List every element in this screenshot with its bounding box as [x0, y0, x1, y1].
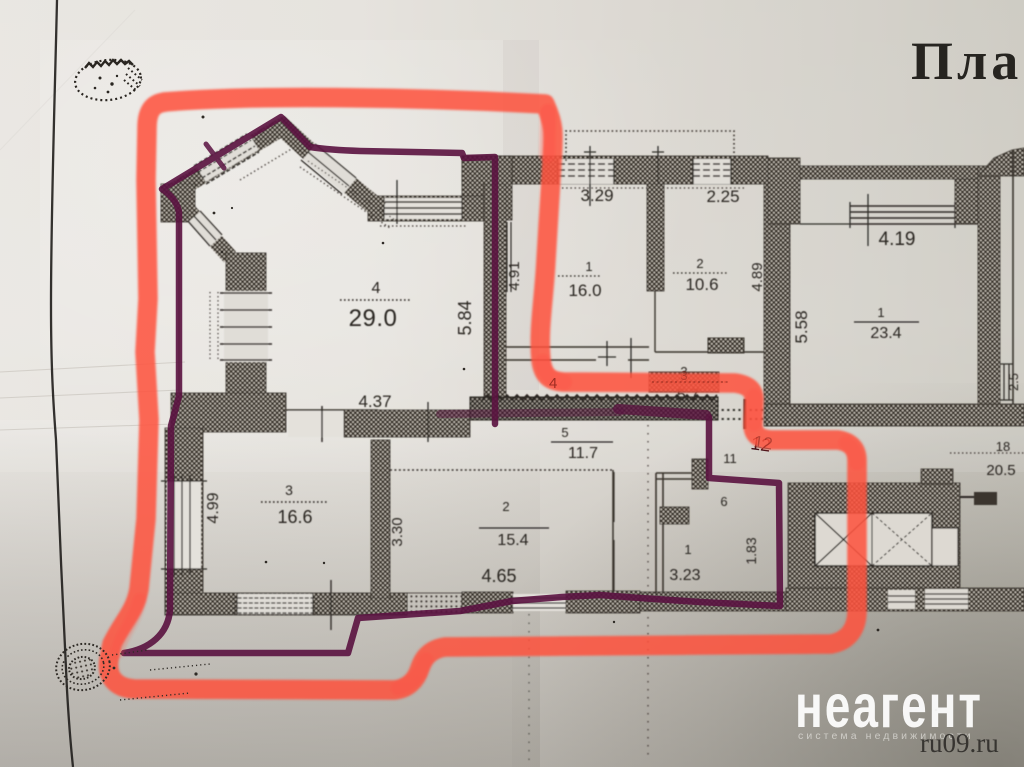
svg-text:2: 2: [696, 256, 703, 271]
svg-text:1.83: 1.83: [743, 537, 759, 564]
svg-text:ru09.ru: ru09.ru: [920, 728, 999, 758]
svg-text:5: 5: [561, 425, 568, 440]
svg-text:15.4: 15.4: [497, 532, 528, 549]
svg-text:4.99: 4.99: [205, 492, 222, 523]
svg-text:4.37: 4.37: [358, 392, 391, 411]
svg-text:6: 6: [720, 494, 727, 509]
svg-text:12: 12: [752, 432, 773, 453]
svg-text:4.19: 4.19: [879, 229, 916, 250]
svg-text:4.91: 4.91: [506, 261, 523, 290]
svg-text:4: 4: [372, 280, 381, 297]
svg-text:23.4: 23.4: [870, 325, 901, 342]
svg-text:1: 1: [877, 305, 884, 320]
svg-text:3.30: 3.30: [389, 517, 406, 546]
svg-text:5.84: 5.84: [455, 300, 475, 335]
svg-text:18: 18: [996, 439, 1010, 454]
svg-text:1: 1: [684, 542, 691, 557]
svg-text:4.65: 4.65: [481, 566, 516, 586]
svg-text:16.6: 16.6: [277, 507, 312, 527]
svg-text:20.5: 20.5: [986, 462, 1015, 479]
svg-text:1: 1: [585, 259, 592, 274]
svg-text:2.5: 2.5: [1006, 373, 1021, 391]
svg-text:3.29: 3.29: [580, 186, 613, 205]
svg-text:16.0: 16.0: [568, 281, 601, 300]
svg-text:3: 3: [680, 368, 687, 383]
svg-text:29.0: 29.0: [349, 305, 398, 332]
svg-text:2.25: 2.25: [706, 187, 739, 206]
svg-text:11.7: 11.7: [568, 445, 598, 462]
svg-text:4: 4: [549, 375, 557, 392]
svg-text:5.58: 5.58: [792, 310, 811, 343]
svg-text:4.89: 4.89: [749, 262, 766, 291]
svg-text:3.23: 3.23: [669, 567, 700, 584]
svg-text:10.6: 10.6: [685, 275, 718, 294]
svg-text:Пла: Пла: [911, 31, 1022, 91]
svg-text:2: 2: [502, 499, 509, 514]
svg-text:3: 3: [285, 482, 293, 498]
svg-text:11: 11: [723, 451, 737, 466]
